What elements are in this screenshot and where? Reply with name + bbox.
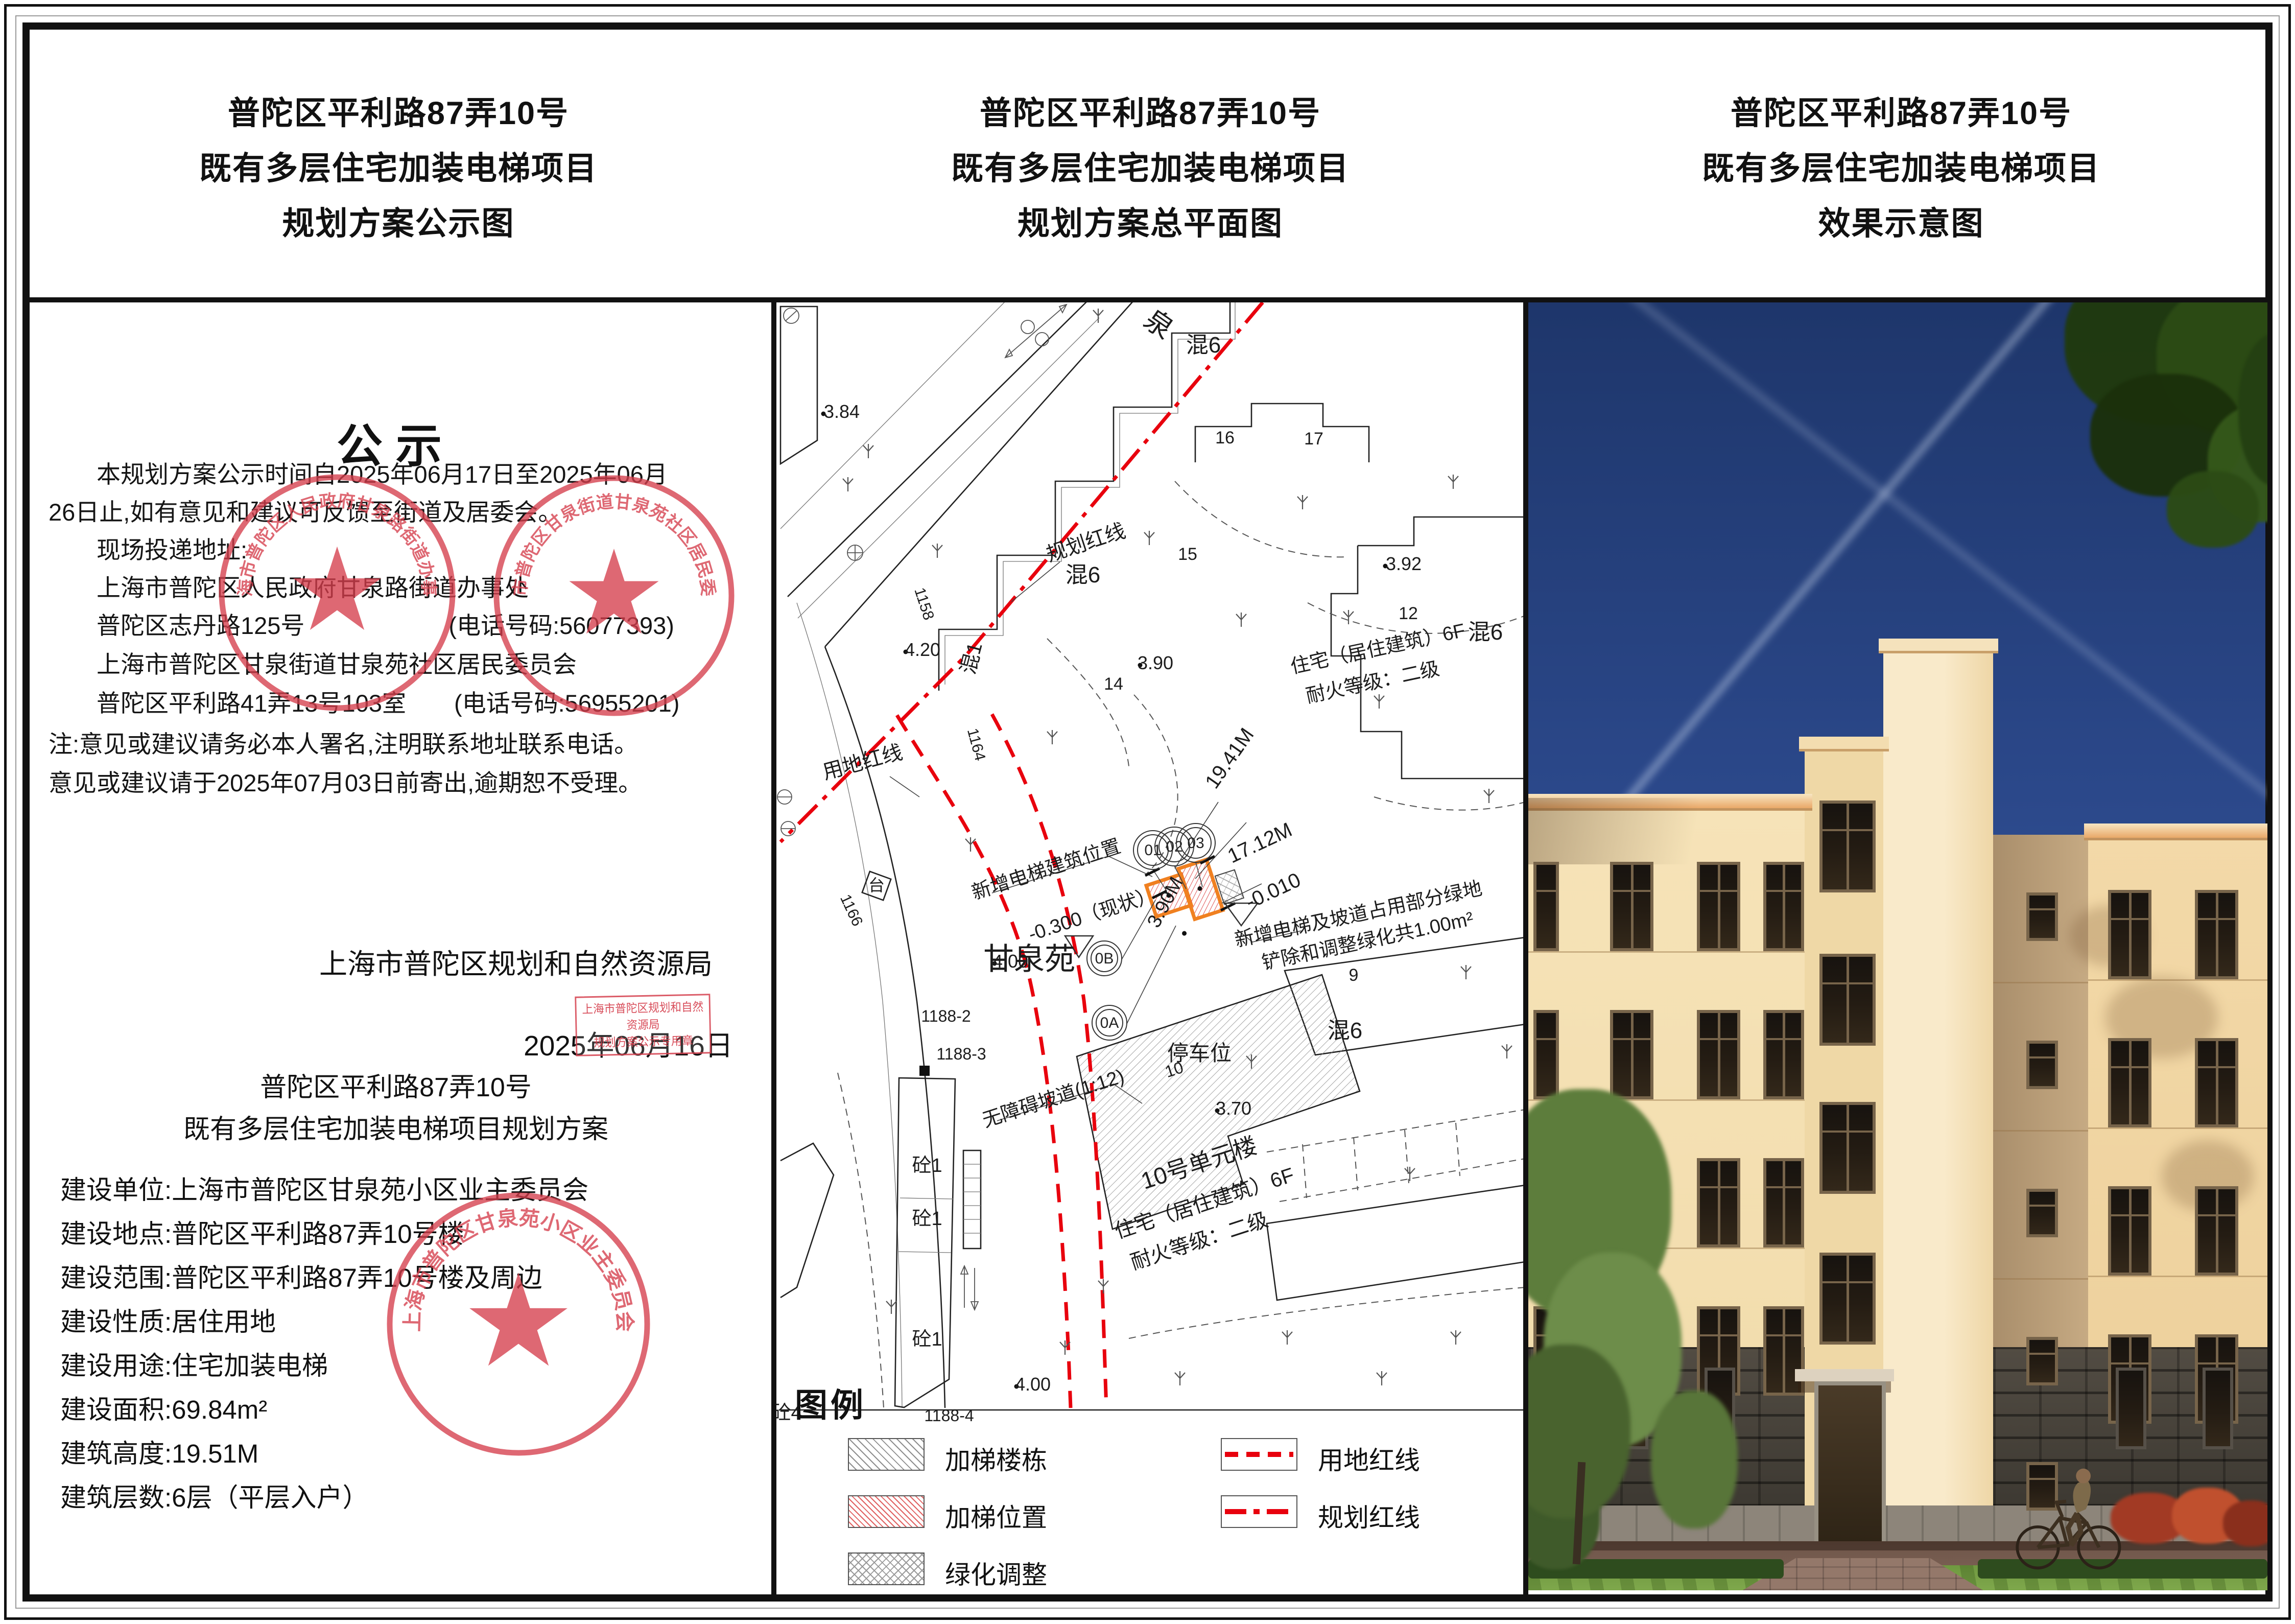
- title-divider: [30, 297, 2265, 302]
- plan-label: 3.70: [1216, 1098, 1251, 1119]
- window: [2026, 892, 2058, 941]
- notice-line: 上海市普陀区甘泉街道甘泉苑社区居民委员会: [49, 645, 764, 680]
- plan-paper: [774, 300, 1526, 1596]
- right-wing-cornice: [2084, 823, 2267, 840]
- plan-label: 17: [1304, 429, 1323, 449]
- title-line: 既有多层住宅加装电梯项目: [1544, 141, 2259, 196]
- window: [2108, 1038, 2151, 1127]
- detail-line: 建设性质:居住用地: [60, 1301, 765, 1338]
- window: [1697, 1010, 1740, 1099]
- notice-line: 普陀区志丹路125号 (电话号码:56077393): [49, 606, 764, 641]
- title-line: 普陀区平利路87弄10号: [41, 86, 756, 141]
- legend-item: 加梯位置: [848, 1495, 1205, 1528]
- legend-swatch-crosshatch: [848, 1552, 925, 1585]
- floor-line: [1993, 1278, 2088, 1280]
- legend-item: 加梯楼栋: [848, 1438, 1205, 1471]
- plan-label: 砼1: [912, 1208, 942, 1230]
- window: [2026, 1041, 2058, 1089]
- legend-swatch-dash-red: [1221, 1438, 1297, 1471]
- detail-line: 建筑高度:19.51M: [60, 1432, 765, 1470]
- plan-label: 砼1: [912, 1155, 942, 1176]
- window: [1610, 1010, 1653, 1099]
- plan-label: 16: [1215, 428, 1235, 448]
- window: [2026, 1189, 2058, 1237]
- plan-label: 3.84: [824, 401, 860, 422]
- sub-bay-cap: [1799, 737, 1889, 751]
- notice-line: 注:意见或建议请务必本人署名,注明联系地址联系电话。: [49, 724, 764, 760]
- shrub: [2223, 1500, 2267, 1546]
- svg-text:0A: 0A: [1100, 1015, 1119, 1031]
- plan-label: 4.00: [1015, 1374, 1051, 1395]
- effect-rendering: [1528, 302, 2267, 1590]
- title-line: 普陀区平利路87弄10号: [793, 86, 1508, 141]
- plan-label: 4.20: [905, 639, 940, 660]
- official-seal-box: 上海市普陀区规划和自然资源局 规划方案公示专用章: [575, 994, 711, 1056]
- legend-swatch-dashdot-red: [1221, 1495, 1297, 1528]
- notice-line: 上海市普陀区人民政府甘泉路街道办事处: [49, 568, 764, 603]
- elevator-tower: [1883, 644, 1993, 1544]
- legend-label: 绿化调整: [945, 1555, 1047, 1591]
- title-line: 既有多层住宅加装电梯项目: [41, 141, 756, 196]
- entrance-canopy: [1795, 1369, 1894, 1381]
- detail-line: 建设地点:普陀区平利路87弄10号楼: [60, 1213, 765, 1251]
- legend-label: 用地红线: [1318, 1440, 1420, 1477]
- svg-text:0B: 0B: [1095, 950, 1114, 967]
- plan-label: 混6: [1066, 562, 1100, 587]
- window: [1610, 862, 1653, 951]
- window: [1763, 1010, 1804, 1099]
- window: [2195, 1186, 2238, 1276]
- seal-box-line: 规划方案公示专用章: [578, 1032, 709, 1051]
- project-subtitle: 普陀区平利路87弄10号: [31, 1066, 761, 1104]
- window: [1819, 801, 1876, 892]
- legend-swatch-hatch-red: [848, 1495, 925, 1528]
- notice-line: 本规划方案公示时间自2025年06月17日至2025年06月: [49, 455, 764, 490]
- plan-label: 1188-3: [936, 1045, 986, 1063]
- floor-line: [1993, 1130, 2088, 1132]
- plan-label: 9: [1349, 966, 1359, 985]
- window: [2108, 1186, 2151, 1276]
- facade-shadow: [1528, 798, 1805, 864]
- plan-label: 停车位: [1167, 1041, 1232, 1065]
- plan-label: 1188-2: [921, 1007, 971, 1025]
- detail-line: 建设面积:69.84m²: [60, 1388, 765, 1426]
- detail-line: 建筑层数:6层（平层入户）: [60, 1476, 765, 1514]
- entrance-door: [1814, 1381, 1886, 1555]
- left-panel-title: 普陀区平利路87弄10号 既有多层住宅加装电梯项目 规划方案公示图: [41, 86, 756, 251]
- title-line: 规划方案公示图: [41, 196, 756, 251]
- floor-line: [1528, 951, 1805, 953]
- legend-label: 加梯位置: [945, 1497, 1047, 1534]
- floor-line: [1993, 982, 2088, 983]
- plan-label: 3.90: [1138, 652, 1173, 673]
- title-line: 普陀区平利路87弄10号: [1544, 86, 2259, 141]
- panel-divider-left: [771, 300, 776, 1596]
- floor-line: [2088, 1276, 2267, 1277]
- tower-cap: [1879, 639, 1998, 653]
- plan-label: 1188-4: [924, 1406, 974, 1425]
- panel-divider-right: [1523, 300, 1528, 1596]
- notice-line: 普陀区平利路41弄13号103室 (电话号码:56955201): [49, 684, 764, 719]
- window: [1533, 862, 1559, 951]
- window: [1819, 954, 1876, 1046]
- issuing-authority: 上海市普陀区规划和自然资源局: [276, 941, 756, 982]
- plan-label: 砼1: [912, 1329, 942, 1350]
- detail-line: 建设用途:住宅加装电梯: [60, 1345, 765, 1382]
- plan-label: 混6: [1186, 333, 1221, 358]
- window: [1819, 1253, 1876, 1345]
- window: [1763, 862, 1804, 951]
- plan-label: 混6: [1328, 1018, 1362, 1043]
- legend-item: 绿化调整: [848, 1552, 1205, 1585]
- window: [1533, 1010, 1559, 1099]
- plan-label: 15: [1178, 545, 1197, 564]
- plan-label: 12: [1399, 604, 1418, 623]
- cyclist: [2003, 1454, 2131, 1572]
- legend-swatch-hatch-gray: [848, 1438, 925, 1471]
- middle-panel-title: 普陀区平利路87弄10号 既有多层住宅加装电梯项目 规划方案总平面图: [793, 86, 1508, 251]
- site-plan: 0102030B0A 规划红线混6混6混6混6混1甘泉苑用地红线新增电梯建筑位置…: [774, 300, 1526, 1596]
- window: [1763, 1158, 1804, 1248]
- public-notice-sheet: 普陀区平利路87弄10号 既有多层住宅加装电梯项目 规划方案公示图 普陀区平利路…: [0, 0, 2295, 1624]
- window: [2203, 1368, 2233, 1449]
- plan-label: 14: [1104, 674, 1123, 694]
- window: [2108, 890, 2151, 979]
- window: [1697, 1158, 1740, 1248]
- title-line: 规划方案总平面图: [793, 196, 1508, 251]
- seal-box-line: 上海市普陀区规划和自然资源局: [577, 998, 708, 1034]
- right-panel-title: 普陀区平利路87弄10号 既有多层住宅加装电梯项目 效果示意图: [1544, 86, 2259, 251]
- window: [1819, 1102, 1876, 1194]
- window: [2116, 1368, 2146, 1449]
- tree-foliage: [1651, 1391, 1738, 1528]
- window: [2026, 1337, 2058, 1385]
- project-subtitle: 既有多层住宅加装电梯项目规划方案: [31, 1108, 761, 1146]
- title-line: 效果示意图: [1544, 196, 2259, 251]
- detail-line: 建设单位:上海市普陀区甘泉苑小区业主委员会: [60, 1169, 765, 1207]
- window: [1697, 862, 1740, 951]
- window: [2195, 1038, 2238, 1127]
- svg-text:03: 03: [1187, 835, 1204, 852]
- tree-canopy: [2167, 471, 2259, 548]
- plan-label: 3.92: [1386, 553, 1422, 574]
- legend-label: 加梯楼栋: [945, 1440, 1047, 1477]
- plan-label: 混6: [1468, 620, 1503, 645]
- floor-line: [2088, 1127, 2267, 1129]
- detail-line: 建设范围:普陀区平利路87弄10号楼及周边: [60, 1257, 765, 1295]
- legend-title: 图例: [795, 1379, 866, 1426]
- window: [2195, 890, 2238, 979]
- notice-line: 现场投递地址:: [49, 530, 764, 566]
- notice-line: 26日止,如有意见和建议可反馈至街道及居委会。: [49, 492, 764, 528]
- title-line: 既有多层住宅加装电梯项目: [793, 141, 1508, 196]
- notice-line: 意见或建议请于2025年07月03日前寄出,逾期恕不受理。: [49, 763, 764, 798]
- plan-label: 4.00: [992, 951, 1028, 972]
- legend-label: 规划红线: [1318, 1497, 1420, 1534]
- plan-label: 台: [868, 876, 885, 895]
